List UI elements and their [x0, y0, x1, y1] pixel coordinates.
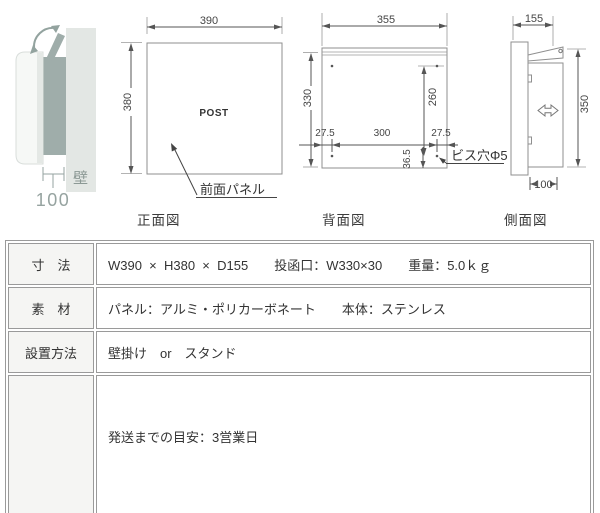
mount-dim-100: 100 — [36, 190, 71, 210]
back-view-caption: 背面図 — [322, 213, 366, 228]
post-label: POST — [199, 108, 228, 119]
side-depth-dim: 155 — [525, 13, 543, 25]
back-view: 355 330 260 27 — [299, 13, 508, 228]
row-value-installation: 壁掛け or スタンド — [96, 331, 591, 373]
back-hole-pitch-dim: 300 — [374, 128, 391, 139]
front-panel-shade — [37, 53, 43, 163]
swing-arrow-icon — [34, 28, 55, 48]
back-right-offset-dim: 27.5 — [431, 128, 451, 139]
wall-label: 壁 — [73, 170, 88, 187]
table-row-dimensions: 寸 法 W390 × H380 × D155 投函口：W330×30 重量：5.… — [8, 243, 591, 285]
arrowhead — [513, 23, 521, 28]
arrowhead — [309, 53, 314, 61]
back-height-dim: 330 — [302, 89, 314, 107]
flap-pivot — [559, 49, 562, 52]
mount-illustration: 100 壁 — [16, 25, 96, 210]
row-label-installation: 設置方法 — [8, 331, 94, 373]
front-height-dim: 380 — [122, 93, 134, 111]
back-width-dim: 355 — [377, 14, 395, 26]
shipping-note: 発送までの目安：3営業日 — [108, 427, 582, 449]
side-flap — [528, 47, 563, 61]
side-clip-bottom — [528, 137, 532, 144]
arrowhead — [322, 24, 330, 29]
front-view-caption: 正面図 — [137, 213, 181, 228]
arrowhead — [439, 24, 447, 29]
side-height-dim: 350 — [579, 95, 591, 113]
wall-shape — [66, 28, 96, 192]
spec-table: 寸 法 W390 × H380 × D155 投函口：W330×30 重量：5.… — [5, 240, 594, 513]
side-body-depth-dim: 100 — [534, 179, 552, 191]
front-width-dim: 390 — [200, 15, 218, 27]
row-value-other: 発送までの目安：3営業日 付属品：取付金具 ※安全に対しての配慮は行っております… — [96, 375, 591, 513]
arrowhead — [576, 159, 581, 167]
arrowhead — [314, 143, 322, 148]
arrowhead — [129, 43, 134, 51]
back-holespan-dim: 260 — [427, 88, 439, 106]
swing-arrow-head-upper — [51, 25, 60, 33]
arrowhead — [447, 143, 455, 148]
side-clip-top — [528, 75, 532, 82]
row-value-material: パネル：アルミ・ポリカーボネート 本体：ステンレス — [96, 287, 591, 329]
table-row-material: 素 材 パネル：アルミ・ポリカーボネート 本体：ステンレス — [8, 287, 591, 329]
arrowhead — [147, 25, 155, 30]
row-label-dimensions: 寸 法 — [8, 243, 94, 285]
arrowhead — [545, 23, 553, 28]
arrowhead — [309, 159, 314, 167]
back-bottom-offset-dim: 36.5 — [402, 149, 413, 169]
row-value-dimensions: W390 × H380 × D155 投函口：W330×30 重量：5.0ｋｇ — [96, 243, 591, 285]
side-view-caption: 側面図 — [504, 213, 548, 228]
row-label-other: その他 — [8, 375, 94, 513]
arrowhead — [274, 25, 282, 30]
arrowhead — [129, 166, 134, 174]
product-spec-sheet: 100 壁 390 380 POST 前面パネル 正面図 — [0, 0, 600, 513]
open-flap-shape — [46, 33, 65, 61]
screw-hole-label: ビス穴Φ5 — [451, 148, 508, 163]
technical-drawing: 100 壁 390 380 POST 前面パネル 正面図 — [0, 0, 600, 238]
screw-hole — [436, 65, 439, 68]
table-row-other: その他 発送までの目安：3営業日 付属品：取付金具 ※安全に対しての配慮は行って… — [8, 375, 591, 513]
screw-hole — [331, 65, 334, 68]
row-label-material: 素 材 — [8, 287, 94, 329]
table-row-installation: 設置方法 壁掛け or スタンド — [8, 331, 591, 373]
side-view: 155 350 100 側面図 — [504, 13, 591, 228]
mailbox-body-shape — [43, 57, 66, 155]
back-left-offset-dim: 27.5 — [315, 128, 335, 139]
panel-label: 前面パネル — [200, 182, 265, 197]
front-view: 390 380 POST 前面パネル 正面図 — [121, 15, 282, 228]
screw-hole — [331, 155, 334, 158]
arrowhead — [576, 49, 581, 57]
screw-hole — [436, 155, 439, 158]
side-plate — [511, 42, 528, 175]
